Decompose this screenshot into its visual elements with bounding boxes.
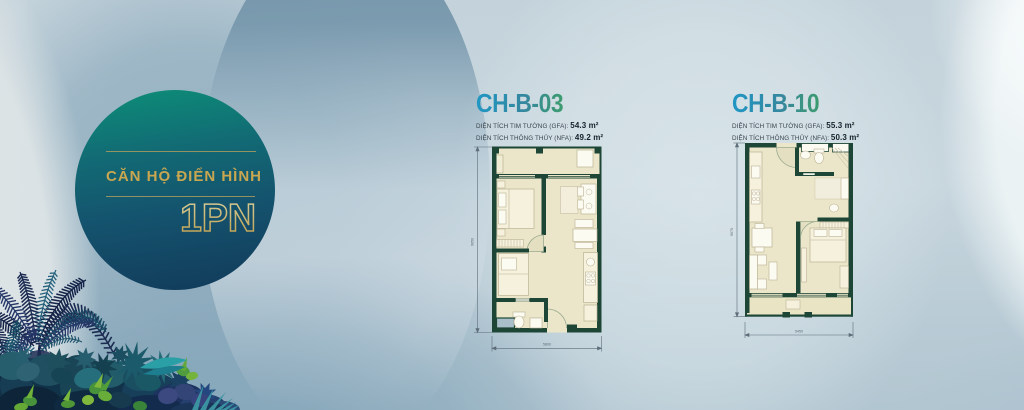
svg-text:9070: 9070 <box>730 228 734 236</box>
svg-text:1PN: 1PN <box>180 200 256 236</box>
svg-text:5450: 5450 <box>795 329 803 333</box>
svg-text:9650: 9650 <box>471 238 475 246</box>
svg-text:5800: 5800 <box>543 343 551 347</box>
